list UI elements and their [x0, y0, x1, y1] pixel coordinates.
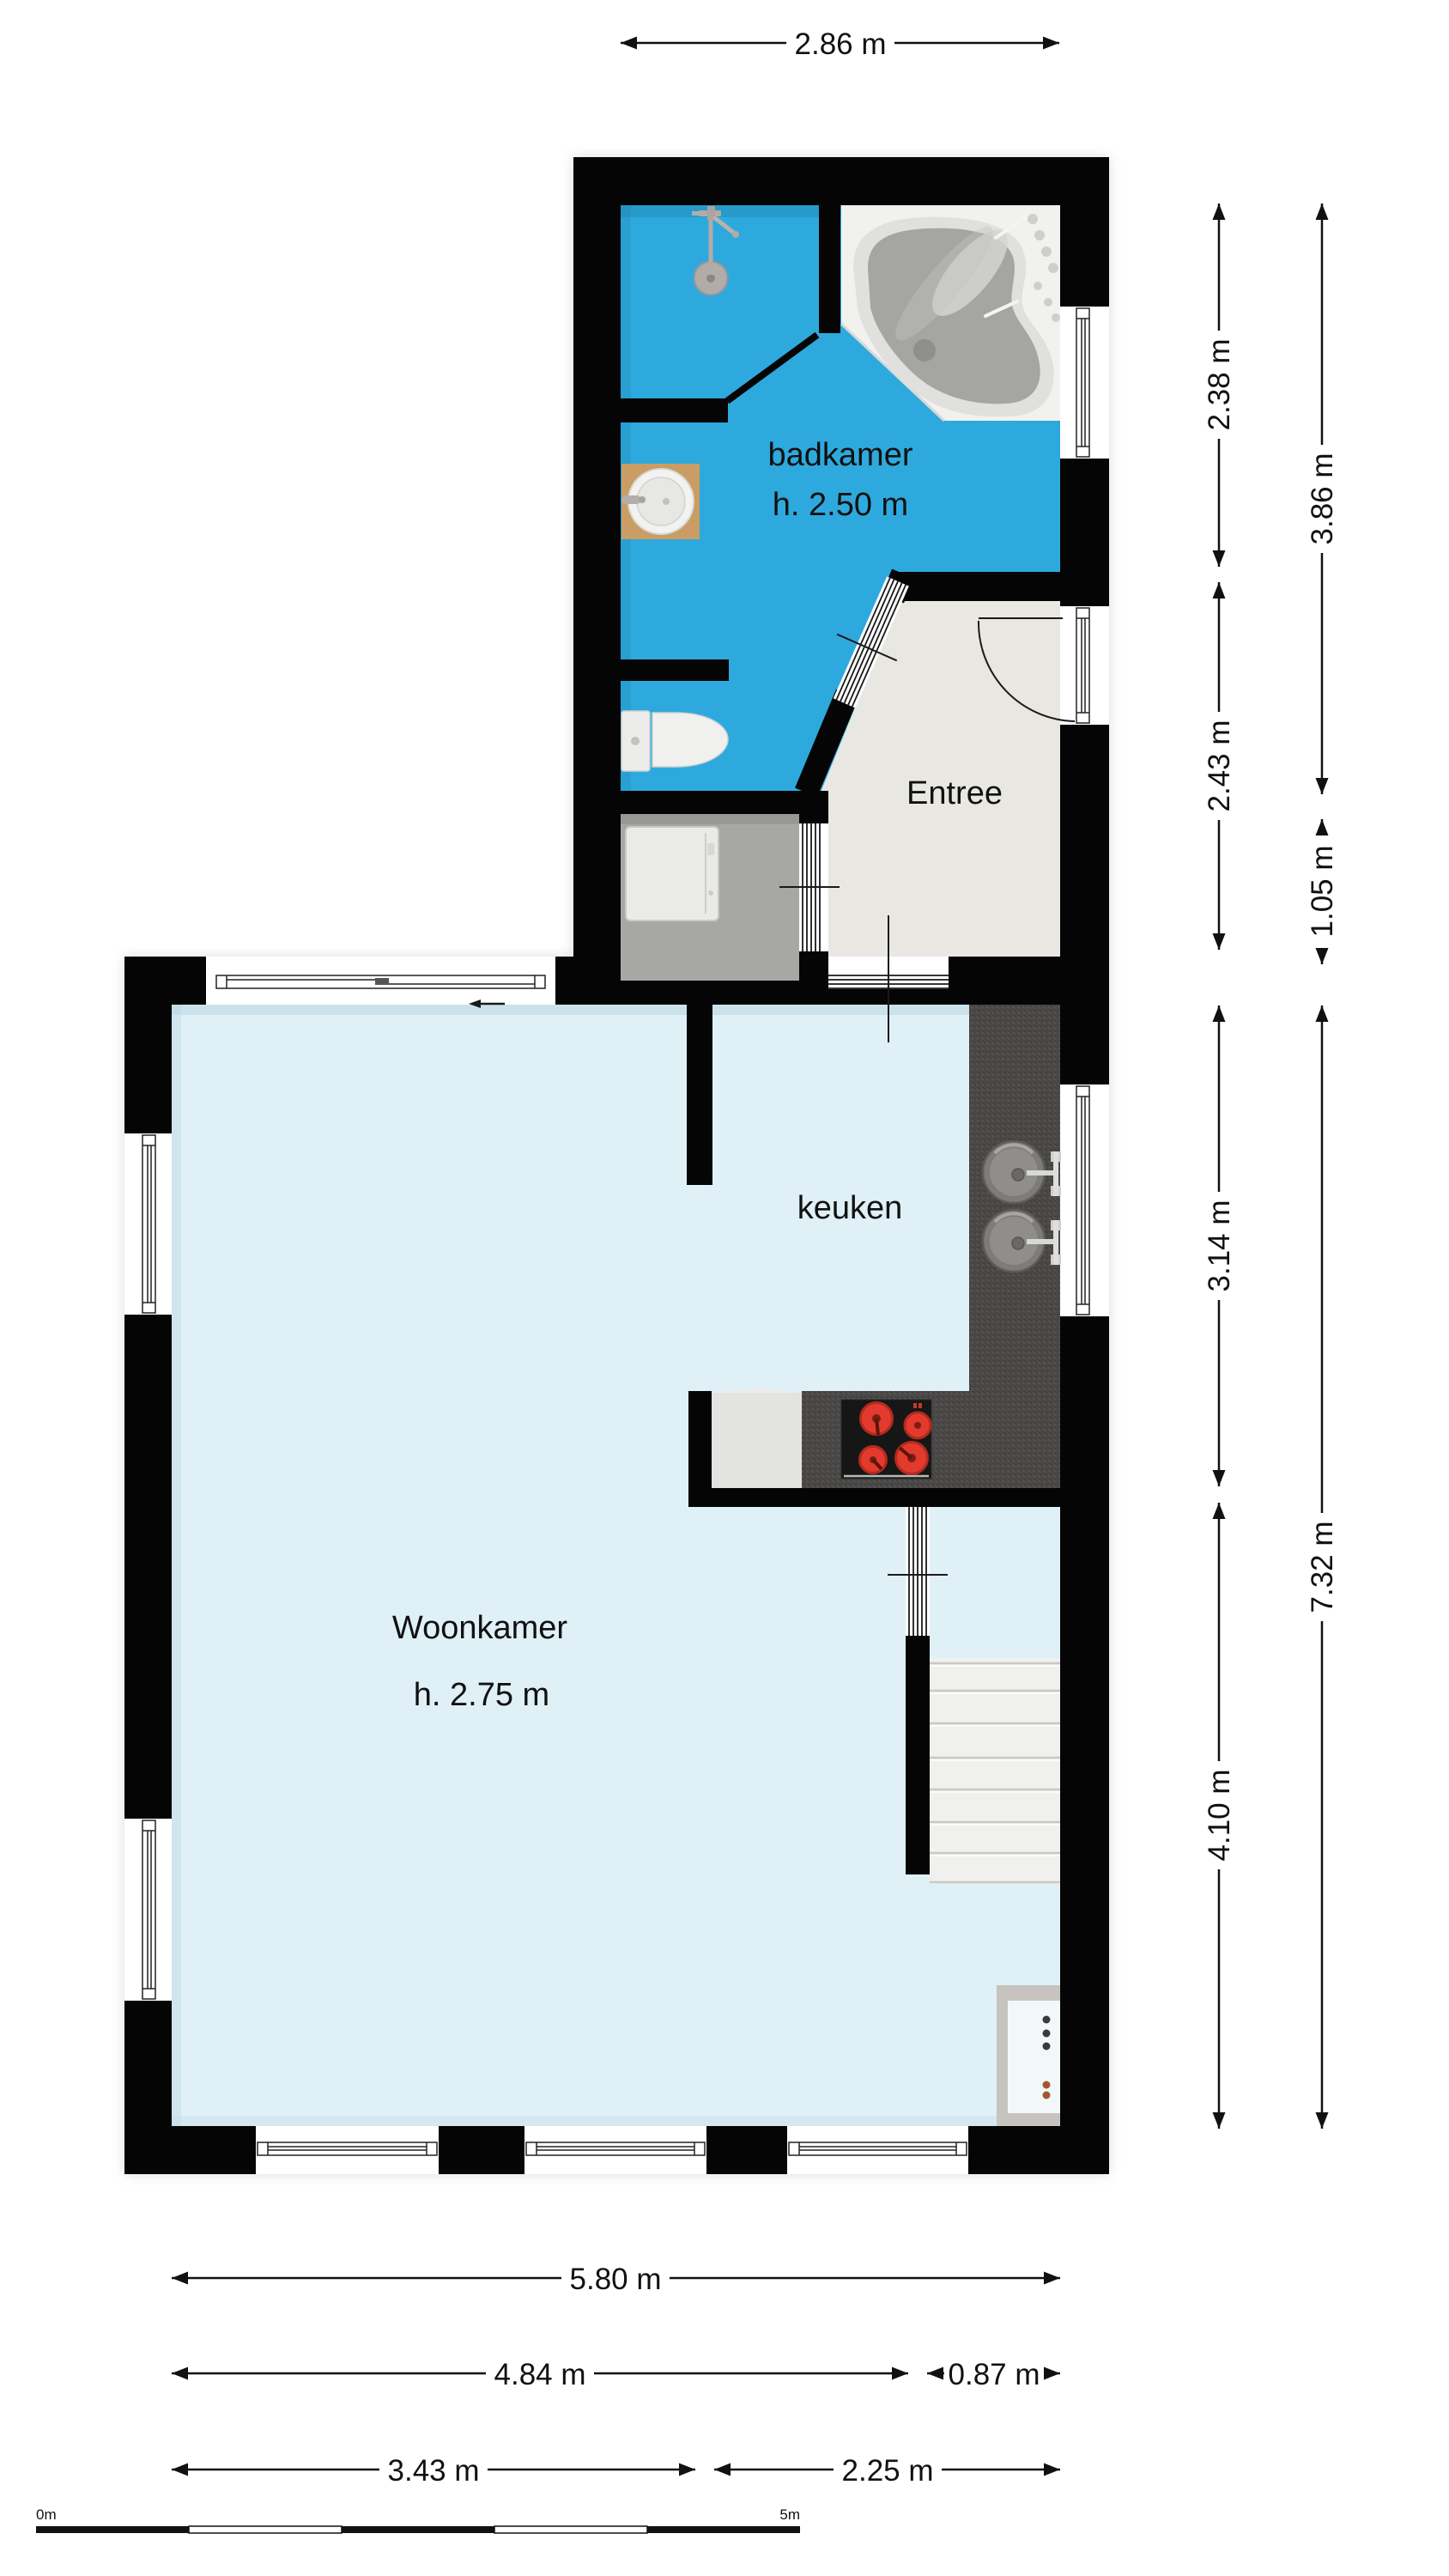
svg-text:3.43 m: 3.43 m	[388, 2454, 480, 2488]
svg-text:keuken: keuken	[797, 1190, 903, 1226]
svg-text:4.84 m: 4.84 m	[494, 2358, 586, 2391]
svg-text:2.86 m: 2.86 m	[795, 27, 887, 61]
svg-text:Entree: Entree	[906, 775, 1003, 811]
svg-text:2.25 m: 2.25 m	[842, 2454, 934, 2488]
svg-text:2.38 m: 2.38 m	[1203, 339, 1236, 431]
svg-text:3.86 m: 3.86 m	[1306, 453, 1339, 545]
svg-text:5.80 m: 5.80 m	[570, 2263, 662, 2296]
svg-text:1.05 m: 1.05 m	[1306, 846, 1339, 938]
svg-text:h. 2.75 m: h. 2.75 m	[414, 1677, 549, 1713]
svg-text:Woonkamer: Woonkamer	[392, 1610, 568, 1646]
svg-text:7.32 m: 7.32 m	[1306, 1522, 1339, 1613]
svg-text:2.43 m: 2.43 m	[1203, 720, 1236, 812]
svg-text:5m: 5m	[779, 2506, 800, 2523]
svg-text:0m: 0m	[36, 2506, 57, 2523]
svg-text:4.10 m: 4.10 m	[1203, 1770, 1236, 1862]
svg-text:h. 2.50 m: h. 2.50 m	[773, 487, 908, 523]
svg-text:badkamer: badkamer	[768, 437, 913, 473]
svg-text:0.87 m: 0.87 m	[949, 2358, 1040, 2391]
svg-text:3.14 m: 3.14 m	[1203, 1200, 1236, 1292]
